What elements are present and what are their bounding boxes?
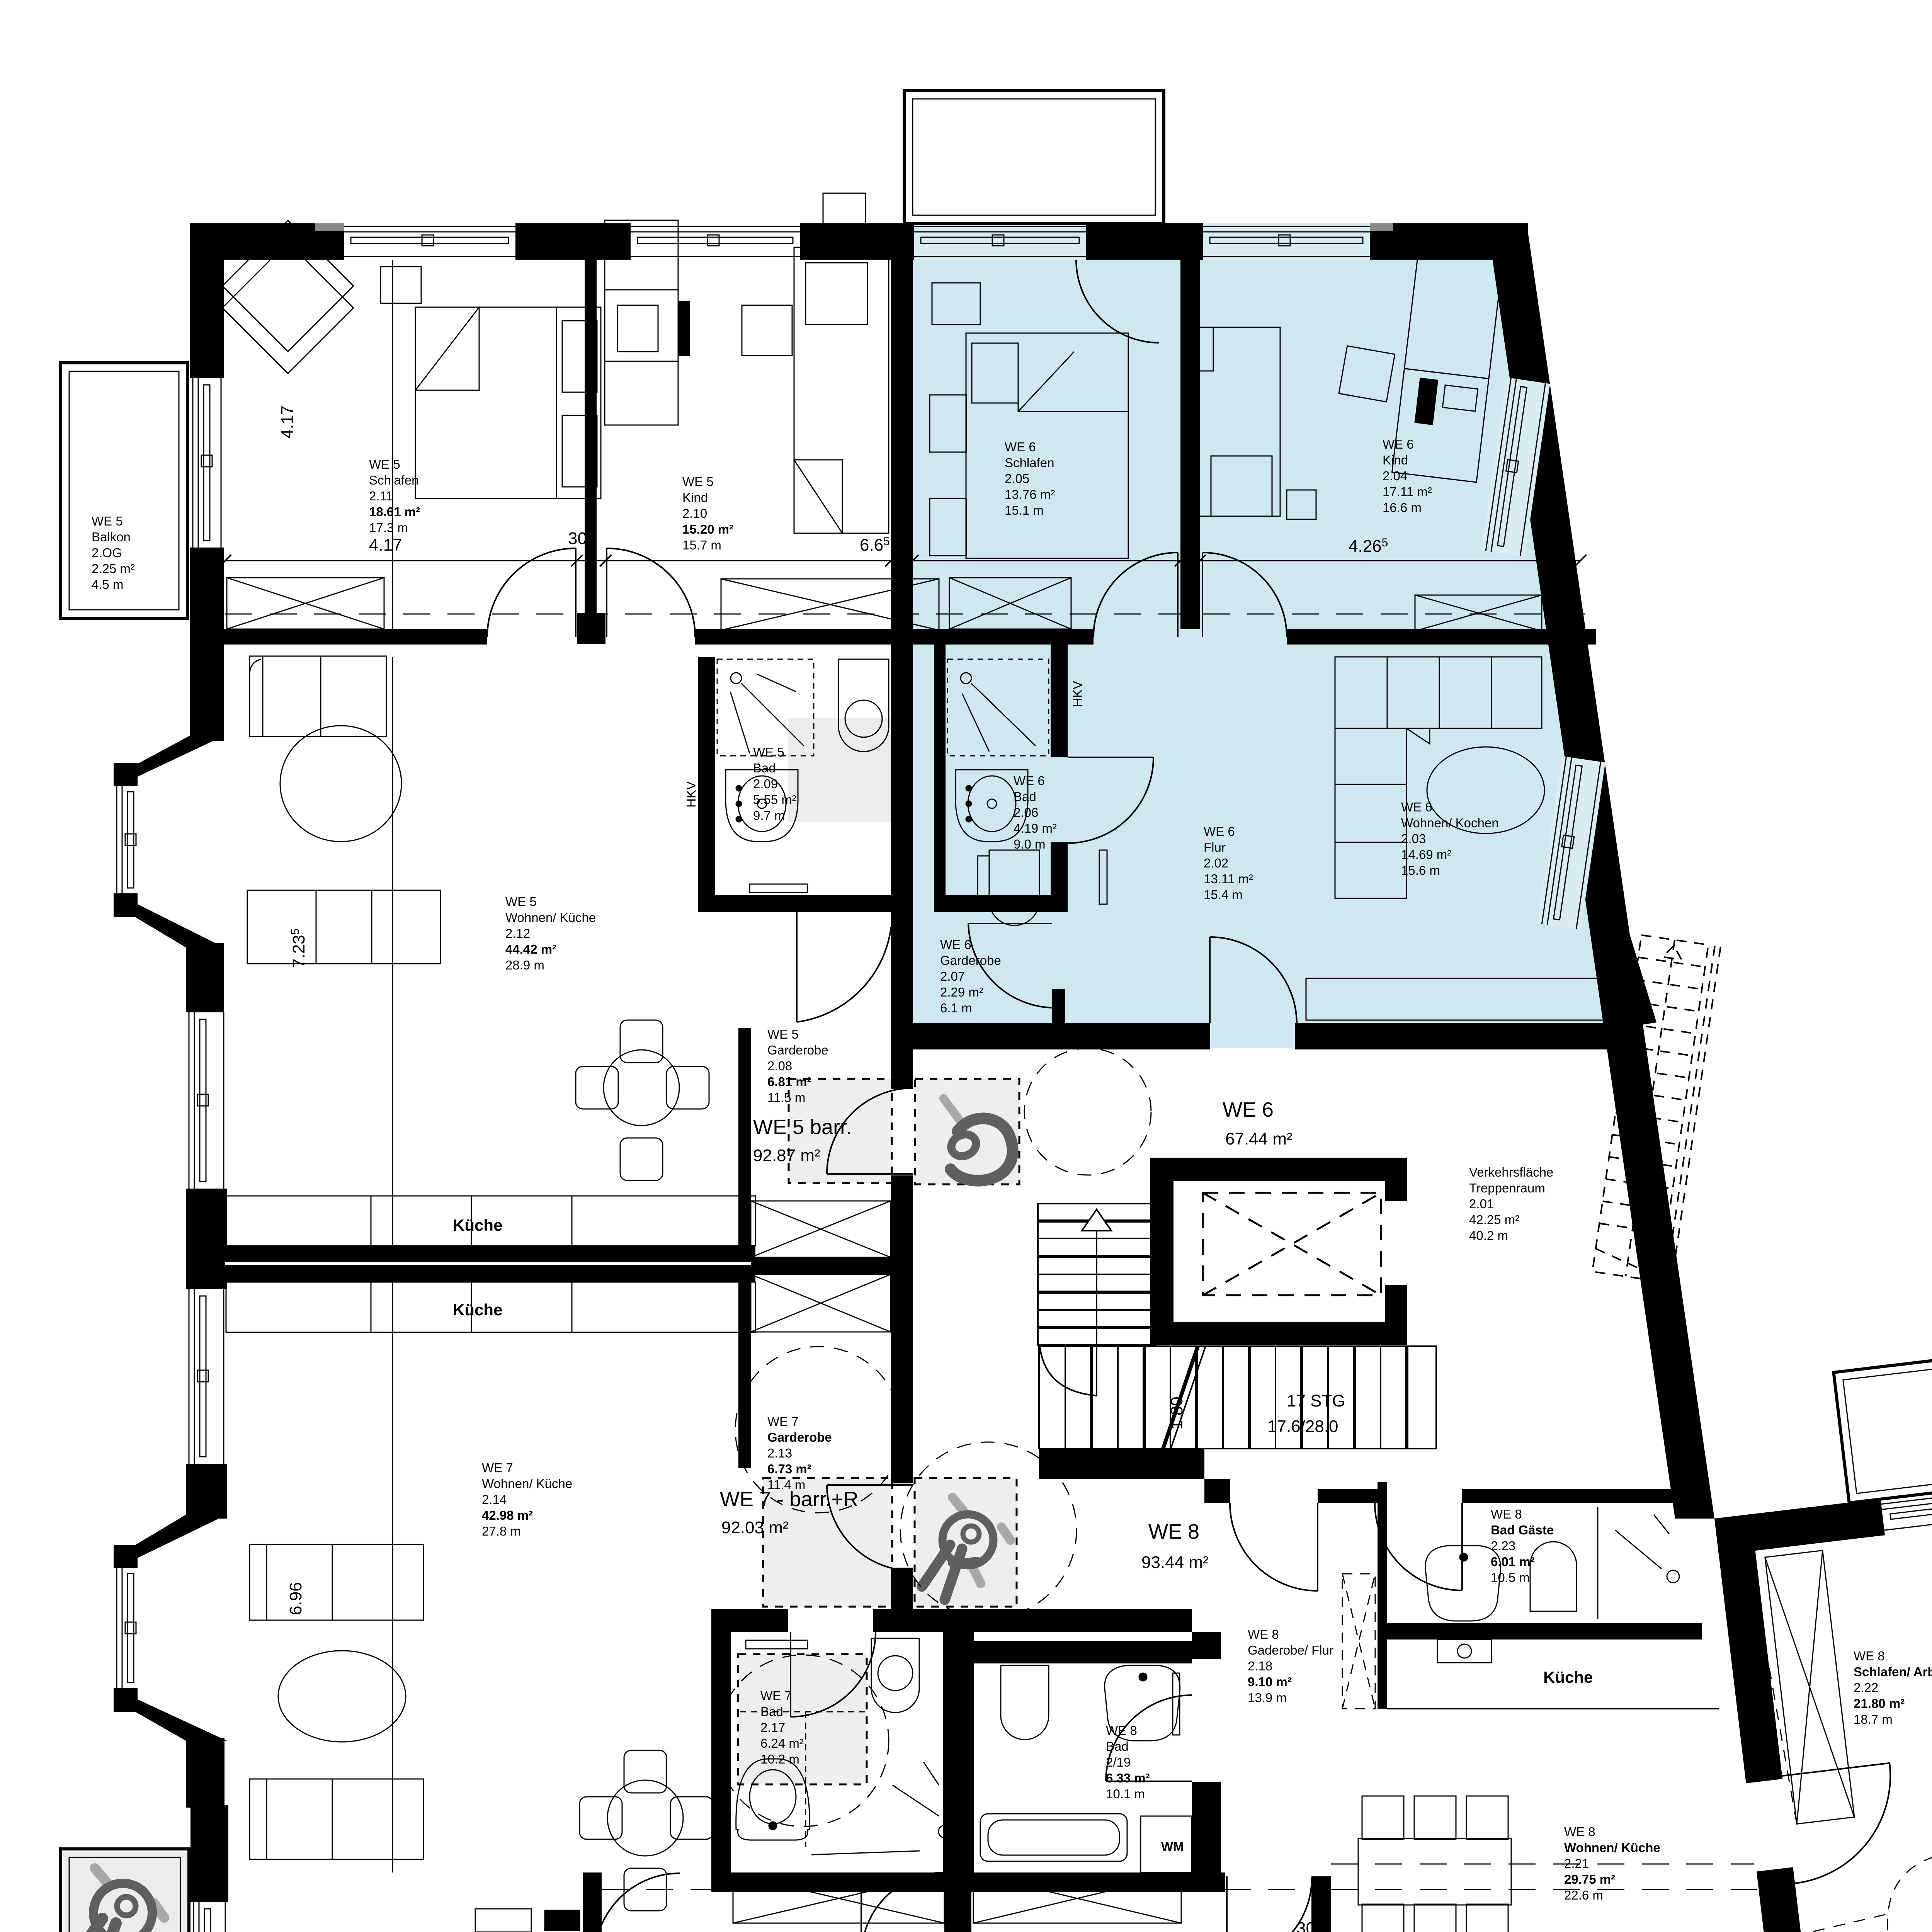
svg-text:Garderobe: Garderobe [940, 953, 1001, 968]
svg-text:2.02: 2.02 [1204, 856, 1228, 870]
svg-text:42.98 m²: 42.98 m² [482, 1508, 533, 1522]
svg-text:2.12: 2.12 [505, 926, 530, 940]
svg-text:15.4 m: 15.4 m [1204, 888, 1243, 902]
svg-text:Schlafen/ Arbeiten: Schlafen/ Arbeiten [1854, 1665, 1932, 1679]
svg-text:17.11 m²: 17.11 m² [1383, 485, 1432, 499]
svg-text:WE 5: WE 5 [767, 1027, 799, 1041]
svg-text:WE 8: WE 8 [1248, 1627, 1279, 1641]
svg-text:Bad: Bad [1106, 1739, 1129, 1753]
svg-text:2.01: 2.01 [1469, 1197, 1494, 1211]
svg-text:WE 8: WE 8 [1564, 1825, 1595, 1839]
svg-text:2.14: 2.14 [482, 1492, 507, 1507]
svg-text:2.05: 2.05 [1005, 471, 1029, 486]
svg-text:Küche: Küche [453, 1301, 502, 1319]
svg-text:2.18: 2.18 [1248, 1659, 1272, 1673]
svg-text:6.24 m²: 6.24 m² [760, 1736, 804, 1750]
svg-text:9.10 m²: 9.10 m² [1248, 1675, 1292, 1689]
svg-text:2.06: 2.06 [1014, 805, 1038, 820]
svg-text:Garderobe: Garderobe [767, 1430, 832, 1444]
svg-text:WM: WM [1161, 1839, 1184, 1854]
svg-text:Treppenraum: Treppenraum [1469, 1181, 1545, 1195]
svg-text:2.29 m²: 2.29 m² [940, 985, 983, 999]
svg-text:WE 6: WE 6 [1204, 824, 1235, 838]
svg-text:17.6/28.0: 17.6/28.0 [1267, 1417, 1338, 1436]
svg-text:10.5 m: 10.5 m [1491, 1570, 1530, 1585]
svg-text:Wohnen/ Küche: Wohnen/ Küche [482, 1476, 572, 1491]
svg-text:15.1 m: 15.1 m [1005, 503, 1044, 517]
svg-text:2.07: 2.07 [940, 969, 965, 983]
svg-text:17.3 m: 17.3 m [369, 520, 408, 535]
svg-text:6.33 m²: 6.33 m² [1106, 1771, 1150, 1785]
svg-text:WE 6: WE 6 [1223, 1098, 1274, 1121]
svg-text:WE 5: WE 5 [505, 895, 537, 909]
svg-text:2.25 m²: 2.25 m² [92, 561, 135, 576]
svg-text:16.6 m: 16.6 m [1383, 500, 1422, 515]
svg-text:Kind: Kind [1383, 453, 1408, 467]
svg-text:15.20 m²: 15.20 m² [682, 522, 733, 536]
svg-text:WE 8: WE 8 [1491, 1507, 1522, 1521]
svg-text:60: 60 [954, 1929, 973, 1932]
svg-text:WE 6: WE 6 [1401, 800, 1432, 814]
svg-text:93.44 m²: 93.44 m² [1141, 1553, 1209, 1572]
svg-text:6.01 m²: 6.01 m² [1491, 1554, 1535, 1569]
svg-text:WE 5 barr.: WE 5 barr. [753, 1116, 852, 1139]
svg-text:Bad: Bad [760, 1704, 783, 1719]
svg-text:WE 7: WE 7 [767, 1414, 799, 1429]
svg-text:Küche: Küche [453, 1216, 502, 1234]
svg-text:9.7 m: 9.7 m [753, 808, 785, 823]
svg-text:WE 8: WE 8 [1148, 1520, 1199, 1543]
svg-text:4.5 m: 4.5 m [92, 577, 124, 592]
svg-text:Bad: Bad [753, 761, 776, 775]
svg-text:WE 6: WE 6 [1383, 437, 1414, 451]
svg-text:2/19: 2/19 [1106, 1755, 1131, 1769]
svg-text:27.8 m: 27.8 m [482, 1524, 521, 1538]
svg-text:Küche: Küche [1543, 1668, 1593, 1686]
svg-text:17 STG: 17 STG [1287, 1391, 1345, 1410]
svg-text:4.17: 4.17 [381, 1929, 414, 1932]
svg-text:11.5 m: 11.5 m [767, 1090, 805, 1105]
svg-text:Verkehrsfläche: Verkehrsfläche [1469, 1165, 1553, 1179]
svg-text:2.09: 2.09 [753, 777, 778, 791]
svg-text:WE 7: WE 7 [760, 1689, 792, 1703]
svg-text:4.17: 4.17 [369, 536, 402, 554]
svg-text:28.9 m: 28.9 m [505, 958, 544, 972]
svg-text:6.96: 6.96 [286, 1582, 305, 1615]
svg-text:4.19 m²: 4.19 m² [1014, 821, 1057, 835]
svg-text:30: 30 [568, 1929, 587, 1932]
svg-text:30: 30 [1296, 1919, 1315, 1932]
svg-text:13.76 m²: 13.76 m² [1005, 487, 1055, 502]
svg-text:Wohnen/ Küche: Wohnen/ Küche [1564, 1840, 1660, 1855]
svg-text:22.6 m: 22.6 m [1564, 1888, 1603, 1902]
svg-text:2.03: 2.03 [1401, 832, 1426, 846]
svg-text:2.13: 2.13 [767, 1446, 792, 1460]
svg-text:92.03 m²: 92.03 m² [721, 1518, 789, 1537]
svg-text:1.80: 1.80 [1167, 1396, 1186, 1430]
svg-text:WE 6: WE 6 [1014, 774, 1045, 788]
svg-text:WE 5: WE 5 [92, 514, 123, 528]
svg-text:13.11 m²: 13.11 m² [1204, 872, 1253, 886]
svg-text:WE 7: WE 7 [482, 1461, 513, 1475]
svg-text:10.1 m: 10.1 m [1106, 1787, 1145, 1801]
svg-text:2.21: 2.21 [1564, 1856, 1589, 1871]
svg-text:WE 5: WE 5 [753, 745, 784, 759]
svg-text:67.44 m²: 67.44 m² [1225, 1129, 1293, 1148]
svg-text:Garderobe: Garderobe [767, 1043, 828, 1057]
svg-text:21.80 m²: 21.80 m² [1854, 1696, 1905, 1711]
svg-text:Bad Gäste: Bad Gäste [1491, 1523, 1554, 1537]
svg-text:2.11: 2.11 [369, 489, 393, 503]
svg-text:2.04: 2.04 [1383, 469, 1407, 483]
svg-text:Wohnen/ Küche: Wohnen/ Küche [505, 910, 596, 925]
svg-text:5.55 m²: 5.55 m² [753, 793, 796, 807]
svg-text:29.75 m²: 29.75 m² [1564, 1872, 1615, 1886]
svg-text:14.69 m²: 14.69 m² [1401, 847, 1451, 862]
svg-text:WE 5: WE 5 [369, 457, 400, 471]
svg-text:Bad: Bad [1014, 789, 1036, 804]
svg-text:44.42 m²: 44.42 m² [505, 942, 556, 956]
svg-text:HKV: HKV [684, 781, 698, 808]
svg-text:WE 7 - barr.+R: WE 7 - barr.+R [720, 1488, 859, 1511]
svg-text:6.81 m²: 6.81 m² [767, 1075, 811, 1089]
svg-text:30: 30 [568, 529, 587, 548]
svg-text:WE 5: WE 5 [682, 474, 714, 489]
svg-text:4.17: 4.17 [278, 405, 297, 439]
svg-text:Gaderobe/ Flur: Gaderobe/ Flur [1248, 1643, 1333, 1657]
svg-text:WE 8: WE 8 [1854, 1649, 1885, 1663]
svg-text:2.08: 2.08 [767, 1059, 792, 1073]
svg-text:2.17: 2.17 [760, 1720, 785, 1735]
svg-text:Schlafen: Schlafen [1005, 456, 1054, 470]
svg-text:40.2 m: 40.2 m [1469, 1228, 1508, 1243]
svg-text:Wohnen/ Kochen: Wohnen/ Kochen [1401, 816, 1499, 830]
svg-text:HKV: HKV [1070, 681, 1085, 707]
svg-text:42.25 m²: 42.25 m² [1469, 1213, 1519, 1227]
svg-text:9.0 m: 9.0 m [1014, 837, 1046, 851]
svg-text:15.7 m: 15.7 m [682, 538, 721, 552]
svg-text:2.10: 2.10 [682, 506, 707, 520]
svg-text:Flur: Flur [1204, 840, 1226, 854]
svg-text:HKV: HKV [714, 1751, 728, 1777]
svg-text:Kind: Kind [682, 490, 708, 505]
svg-text:6.73 m²: 6.73 m² [767, 1462, 811, 1476]
svg-text:WE 8: WE 8 [1106, 1723, 1137, 1738]
svg-text:18.7 m: 18.7 m [1854, 1712, 1893, 1726]
svg-text:Balkon: Balkon [92, 530, 131, 544]
svg-text:Schlafen: Schlafen [369, 473, 418, 487]
svg-text:2.22: 2.22 [1854, 1680, 1878, 1695]
svg-text:2.23: 2.23 [1491, 1539, 1515, 1553]
svg-text:18.61 m²: 18.61 m² [369, 505, 420, 519]
svg-text:WE 6: WE 6 [940, 937, 971, 952]
svg-text:13.9 m: 13.9 m [1248, 1690, 1287, 1705]
svg-text:92.87 m²: 92.87 m² [753, 1146, 820, 1165]
svg-text:10.2 m: 10.2 m [760, 1752, 799, 1766]
svg-text:15.6 m: 15.6 m [1401, 863, 1440, 878]
svg-text:2.OG: 2.OG [92, 546, 122, 560]
svg-text:WE 6: WE 6 [1005, 440, 1036, 454]
svg-text:6.1 m: 6.1 m [940, 1001, 972, 1015]
